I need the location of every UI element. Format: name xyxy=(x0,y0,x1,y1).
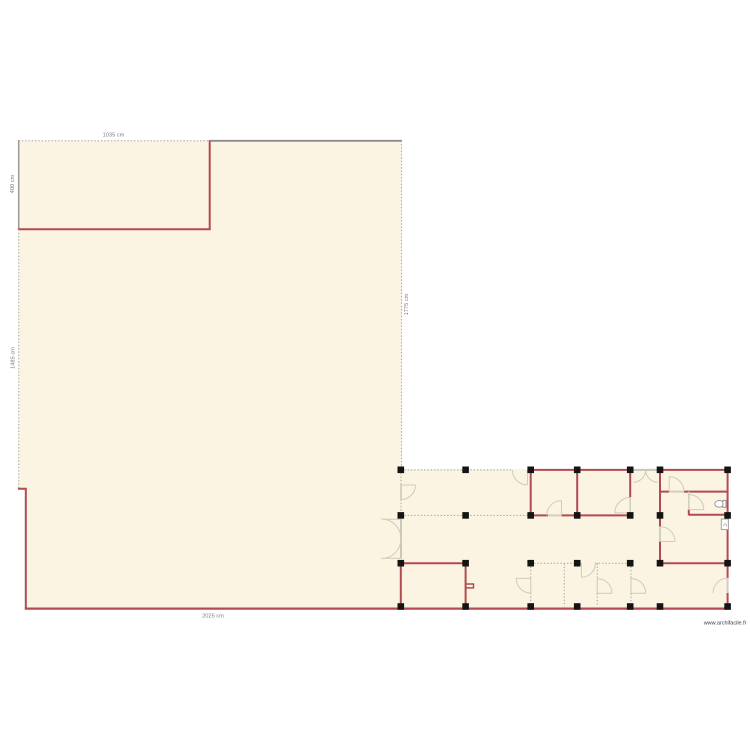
svg-text:1035 cm: 1035 cm xyxy=(103,133,125,139)
svg-text:400 cm: 400 cm xyxy=(10,174,16,193)
svg-text:2025 cm: 2025 cm xyxy=(202,614,224,620)
svg-text:1485 cm: 1485 cm xyxy=(11,347,17,369)
svg-text:www.archifacile.fr: www.archifacile.fr xyxy=(703,620,747,626)
svg-text:1775 cm: 1775 cm xyxy=(404,293,410,315)
